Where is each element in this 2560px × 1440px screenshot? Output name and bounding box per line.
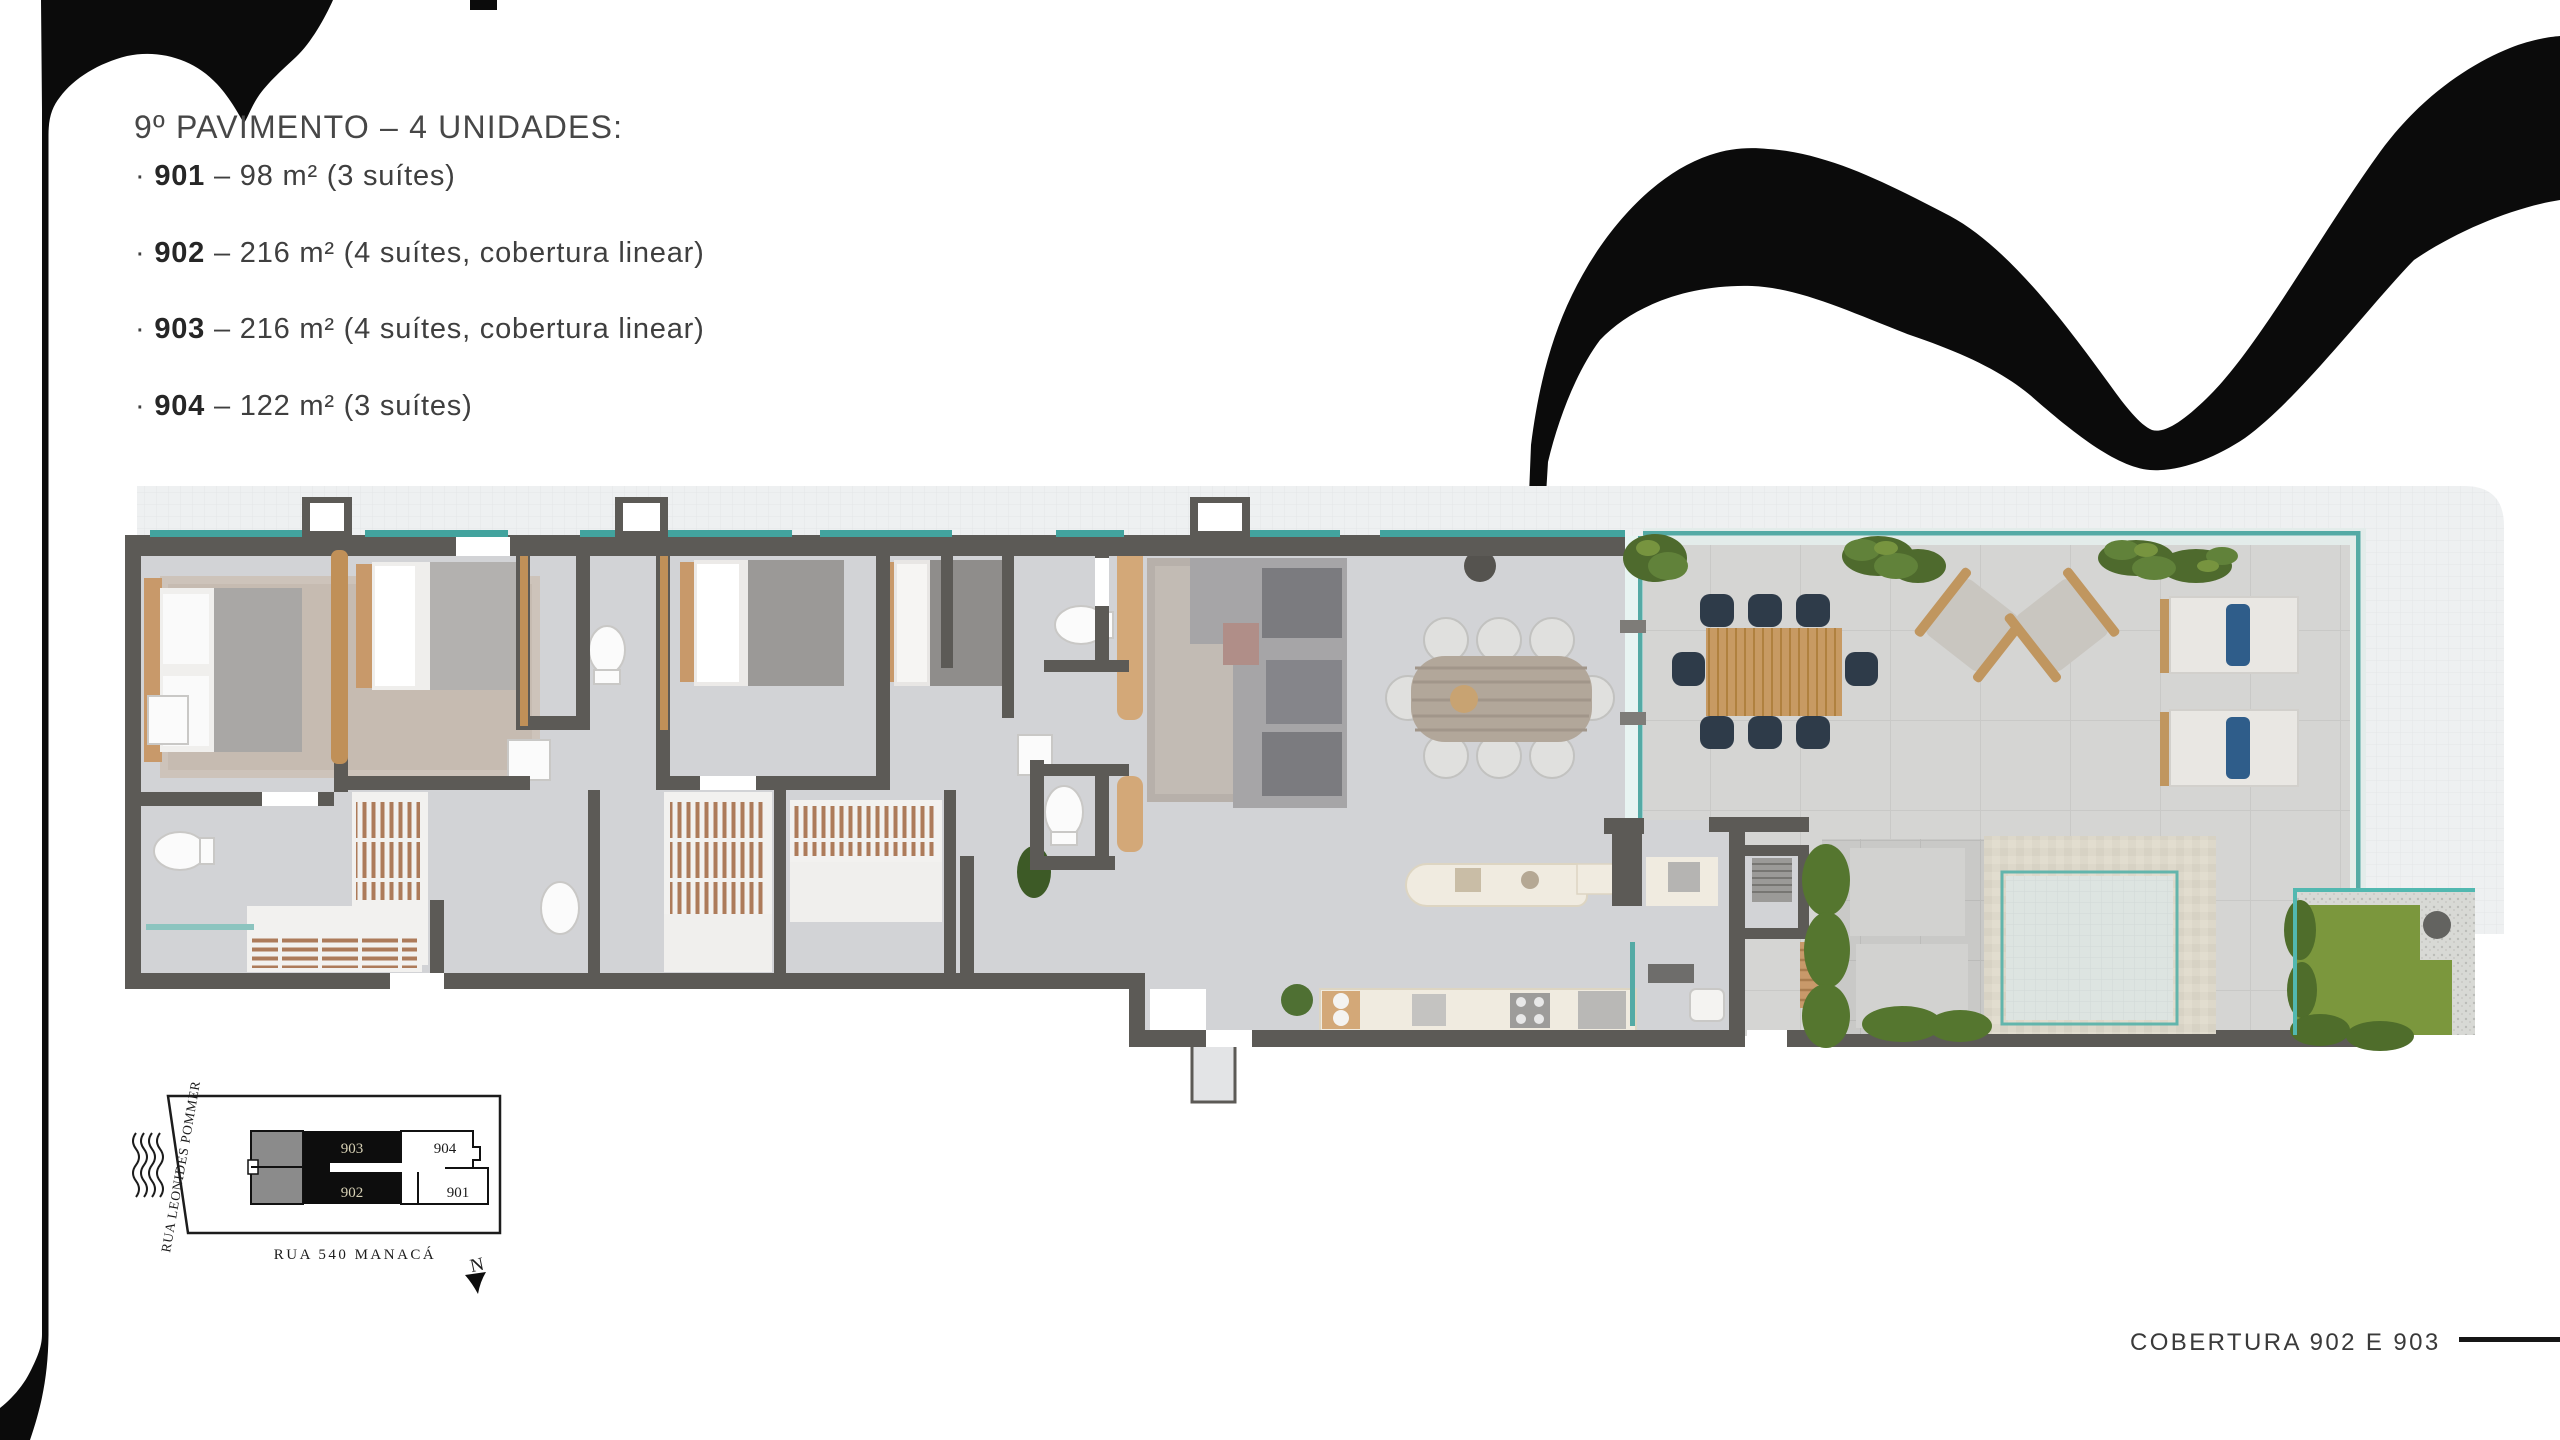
svg-text:RUA 540 MANACÁ: RUA 540 MANACÁ: [274, 1246, 437, 1263]
svg-text:901: 901: [447, 1185, 470, 1201]
svg-text:902: 902: [341, 1185, 364, 1201]
svg-text:903: 903: [341, 1141, 364, 1157]
svg-text:904: 904: [434, 1141, 457, 1157]
